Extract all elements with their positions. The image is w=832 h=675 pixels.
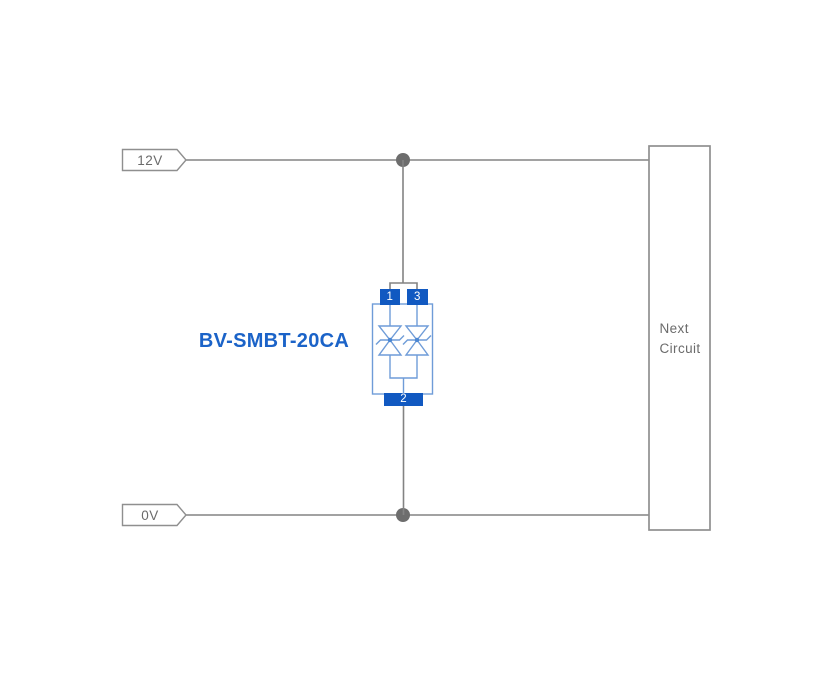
bottom-rail-label: 0V (122, 505, 178, 527)
diagram-linework (0, 0, 832, 675)
pin-2-pad: 2 (384, 393, 423, 407)
circuit-diagram: 1 3 2 12V 0V BV-SMBT-20CA Next Circuit (0, 0, 832, 675)
pin-3-label: 3 (414, 291, 420, 303)
left-diode-center-dot (388, 338, 392, 342)
pin-2-label: 2 (400, 393, 406, 405)
next-circuit-line1: Next (660, 319, 701, 339)
next-circuit-label: Next Circuit (660, 319, 701, 358)
left-diode-bottom-triangle (379, 340, 401, 355)
next-circuit-line2: Circuit (660, 339, 701, 359)
right-diode-center-dot (415, 338, 419, 342)
right-diode-bottom-triangle (406, 340, 428, 355)
diode-bottom-join (390, 355, 417, 378)
top-rail-label: 12V (122, 150, 178, 172)
pin-3-pad: 3 (407, 289, 428, 305)
pin-1-pad: 1 (380, 289, 401, 305)
pin-1-label: 1 (387, 291, 393, 303)
component-part-number-label: BV-SMBT-20CA (186, 329, 362, 355)
